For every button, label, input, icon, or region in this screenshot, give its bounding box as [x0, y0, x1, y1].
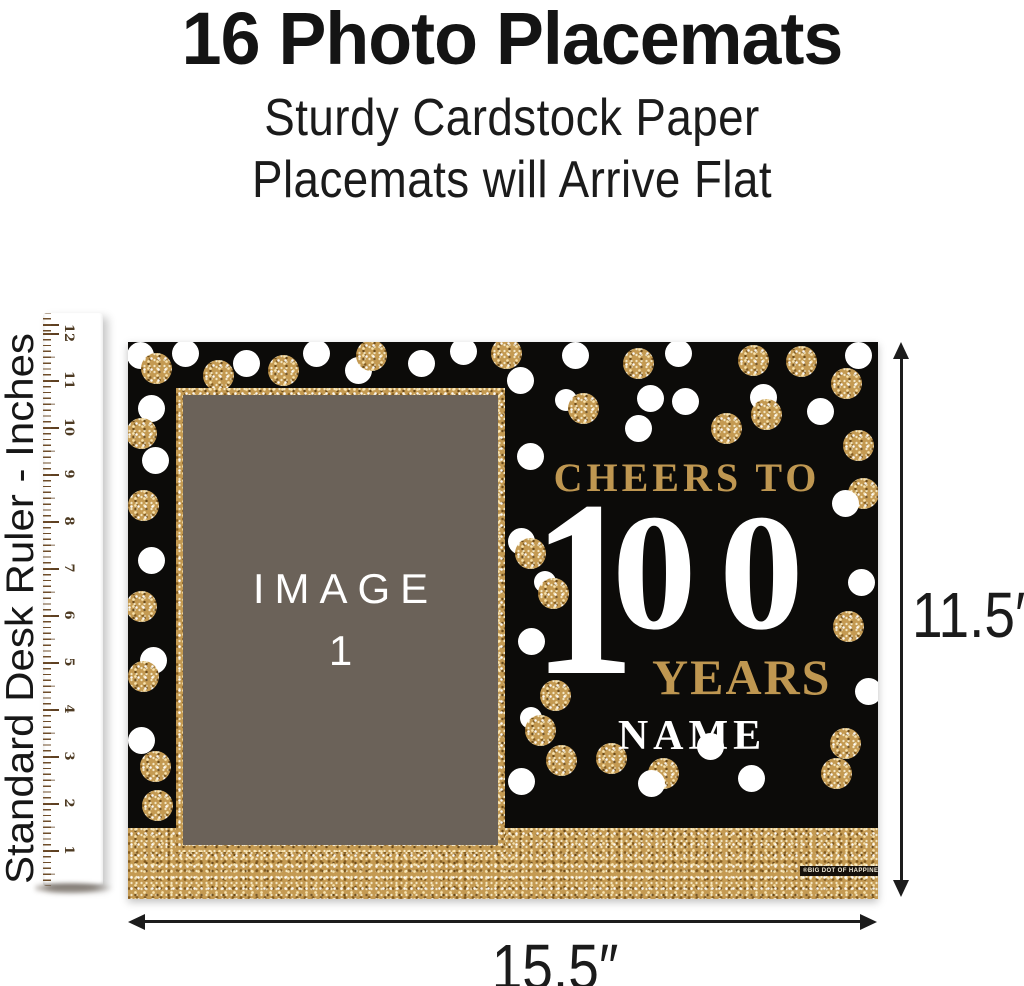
ruler-label: Standard Desk Ruler - Inches — [0, 364, 42, 854]
ruler-number: 9 — [59, 465, 77, 483]
gold-glitter-dot — [546, 745, 577, 776]
white-dot — [303, 342, 330, 367]
white-dot — [128, 727, 155, 754]
white-dot — [665, 342, 692, 367]
white-dot — [637, 385, 664, 412]
ruler-number: 3 — [59, 747, 77, 765]
gold-glitter-dot — [830, 728, 861, 759]
ruler-number: 5 — [59, 653, 77, 671]
arrowhead-up-icon — [893, 342, 909, 359]
gold-glitter-dot — [128, 661, 159, 692]
number-100-digits-00: 00 — [612, 489, 826, 655]
gold-glitter-dot — [356, 342, 387, 371]
width-dimension-label: 15.5″ — [439, 930, 671, 986]
gold-glitter-dot — [831, 368, 862, 399]
white-dot — [138, 547, 165, 574]
gold-glitter-dot — [142, 790, 173, 821]
gold-glitter-dot — [786, 346, 817, 377]
ruler-number: 6 — [59, 606, 77, 624]
subtitle-line-2: Placemats will Arrive Flat — [61, 150, 962, 210]
gold-glitter-dot — [751, 399, 782, 430]
white-dot — [233, 350, 260, 377]
ruler-number: 12 — [59, 324, 77, 342]
brand-tag: ®BIG DOT OF HAPPINESS® — [800, 866, 878, 876]
photo-placeholder-text: IMAGE — [243, 568, 438, 610]
desk-ruler: 121110987654321 — [43, 313, 103, 886]
gold-glitter-dot — [203, 360, 234, 391]
arrowhead-right-icon — [860, 914, 877, 930]
gold-glitter-dot — [268, 355, 299, 386]
white-dot — [142, 447, 169, 474]
gold-glitter-dot — [568, 393, 599, 424]
ruler-number: 10 — [59, 418, 77, 436]
photo-placeholder-frame: IMAGE 1 — [176, 388, 505, 852]
white-dot — [562, 342, 589, 369]
gold-glitter-dot — [128, 418, 157, 449]
gold-glitter-dot — [491, 342, 522, 369]
white-dot — [408, 350, 435, 377]
white-dot — [507, 367, 534, 394]
height-dimension-arrow — [900, 352, 903, 886]
name-text: NAME — [606, 712, 778, 760]
gold-glitter-dot — [843, 430, 874, 461]
gold-glitter-dot — [711, 413, 742, 444]
ruler-number: 1 — [59, 841, 77, 859]
white-dot — [638, 770, 665, 797]
product-title: 16 Photo Placemats — [15, 0, 1008, 81]
white-dot — [848, 569, 875, 596]
white-dot — [807, 398, 834, 425]
ruler-number: 7 — [59, 559, 77, 577]
gold-glitter-dot — [623, 348, 654, 379]
gold-glitter-dot — [141, 353, 172, 384]
ruler-number: 2 — [59, 794, 77, 812]
white-dot — [508, 768, 535, 795]
white-dot — [738, 765, 765, 792]
white-dot — [672, 388, 699, 415]
white-dot — [855, 678, 879, 705]
ruler-number: 4 — [59, 700, 77, 718]
height-dimension-label: 11.5″ — [912, 578, 1024, 652]
gold-glitter-dot — [128, 591, 157, 622]
photo-placeholder: IMAGE 1 — [183, 395, 498, 845]
gold-glitter-dot — [140, 751, 171, 782]
gold-glitter-dot — [738, 345, 769, 376]
ruler-number: 8 — [59, 512, 77, 530]
gold-glitter-dot — [833, 611, 864, 642]
white-dot — [172, 342, 199, 367]
arrowhead-down-icon — [893, 880, 909, 897]
photo-placeholder-number: 1 — [319, 630, 362, 672]
placemat: IMAGE 1 CHEERS TO 1 00 YEARS NAME ®BIG D… — [128, 342, 878, 899]
white-dot — [845, 342, 872, 369]
arrowhead-left-icon — [128, 914, 145, 930]
gold-glitter-dot — [821, 758, 852, 789]
gold-glitter-dot — [128, 490, 159, 521]
product-infographic: 16 Photo Placemats Sturdy Cardstock Pape… — [0, 0, 1024, 986]
subtitle-line-1: Sturdy Cardstock Paper — [61, 88, 962, 148]
white-dot — [832, 490, 859, 517]
white-dot — [450, 342, 477, 365]
width-dimension-arrow — [140, 920, 866, 923]
years-text: YEARS — [652, 648, 824, 706]
ruler-number: 11 — [59, 371, 77, 389]
white-dot — [625, 415, 652, 442]
